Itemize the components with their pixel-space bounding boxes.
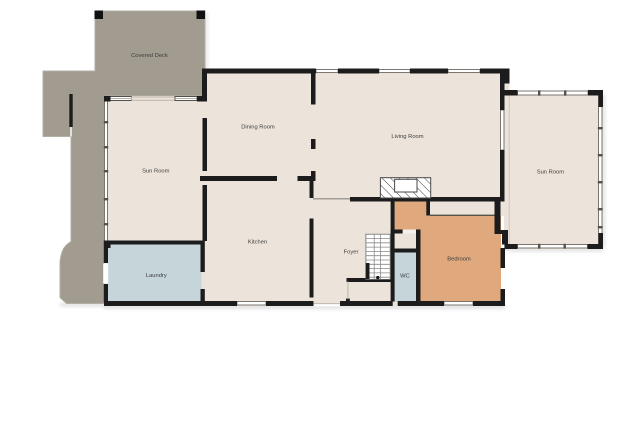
svg-text:Sun Room: Sun Room (537, 170, 565, 176)
svg-text:WC: WC (400, 274, 410, 280)
svg-text:Sun Room: Sun Room (142, 169, 170, 175)
svg-text:Kitchen: Kitchen (248, 240, 267, 246)
svg-text:Dining Room: Dining Room (241, 124, 275, 130)
svg-text:Covered Deck: Covered Deck (131, 53, 168, 59)
svg-text:Laundry: Laundry (146, 273, 167, 279)
svg-text:Living Room: Living Room (391, 134, 423, 140)
svg-text:Foyer: Foyer (344, 250, 359, 256)
svg-text:Bedroom: Bedroom (447, 257, 471, 263)
